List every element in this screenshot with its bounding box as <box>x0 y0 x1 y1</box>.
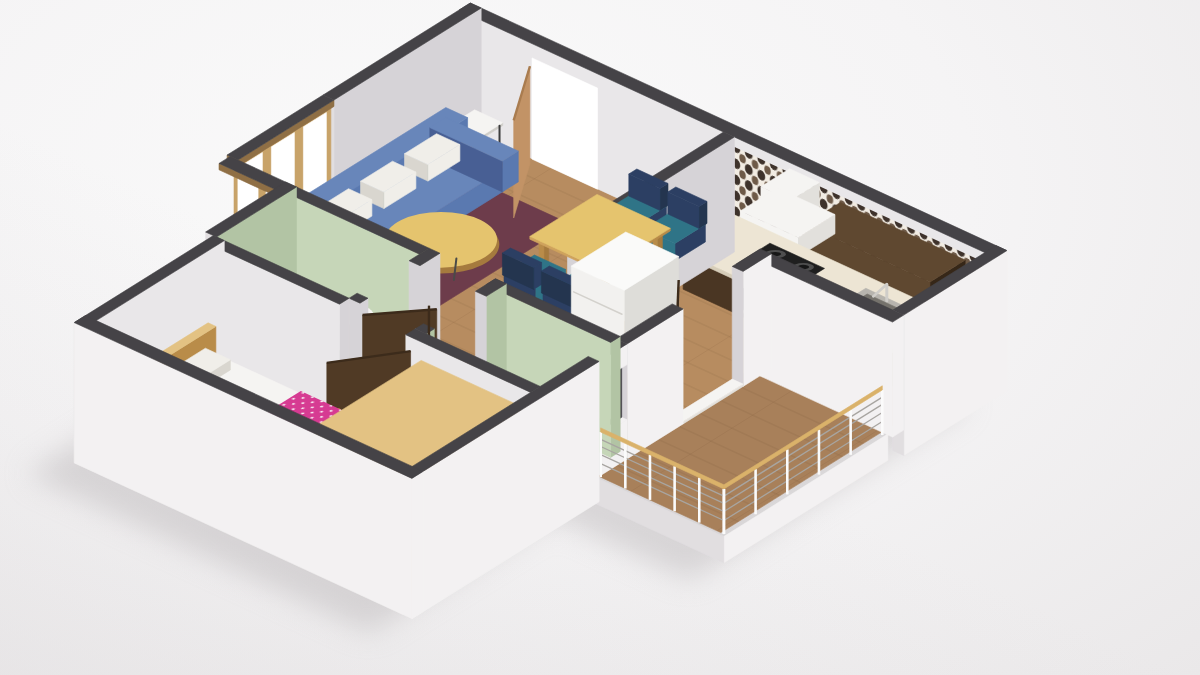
wall-balcony-divider-face-e <box>743 254 771 387</box>
floorplan-svg <box>0 0 1200 675</box>
wall-balcony-divider-face-s <box>732 266 743 386</box>
apartment-floorplan-render: 3D isometric apartment floor plan render <box>0 0 1200 675</box>
wall-bedroom-front-face-e <box>412 471 423 618</box>
wall-balcony-back-face-e <box>893 315 904 437</box>
